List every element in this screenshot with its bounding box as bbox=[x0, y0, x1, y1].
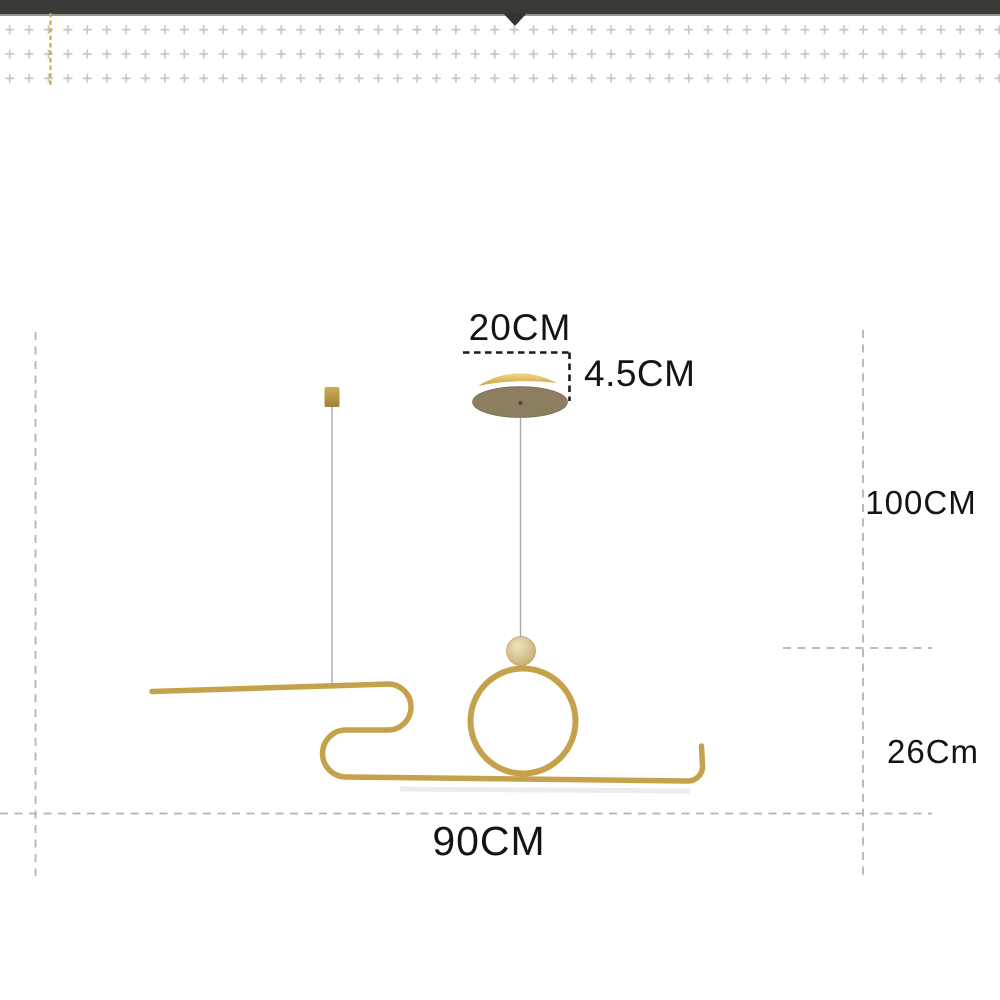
fixture-width-label: 90CM bbox=[409, 820, 569, 863]
fixture-shadow bbox=[400, 789, 690, 791]
canopy-trim-arc bbox=[478, 373, 557, 386]
decorative-ball bbox=[507, 637, 536, 666]
canopy-width-label: 20CM bbox=[440, 309, 600, 348]
canopy-height-label: 4.5CM bbox=[584, 355, 764, 394]
light-ring bbox=[471, 669, 576, 774]
product-dimension-image: 20CM 4.5CM 100CM 26Cm 90CM bbox=[0, 0, 1000, 1000]
fixture-height-label: 26Cm bbox=[853, 735, 1000, 770]
plus-pattern-background bbox=[0, 25, 1000, 85]
ceiling-connector-cylinder bbox=[325, 387, 340, 407]
canopy-center-dot bbox=[518, 401, 522, 405]
led-light-tube bbox=[152, 684, 703, 781]
drop-height-label: 100CM bbox=[841, 486, 1000, 521]
